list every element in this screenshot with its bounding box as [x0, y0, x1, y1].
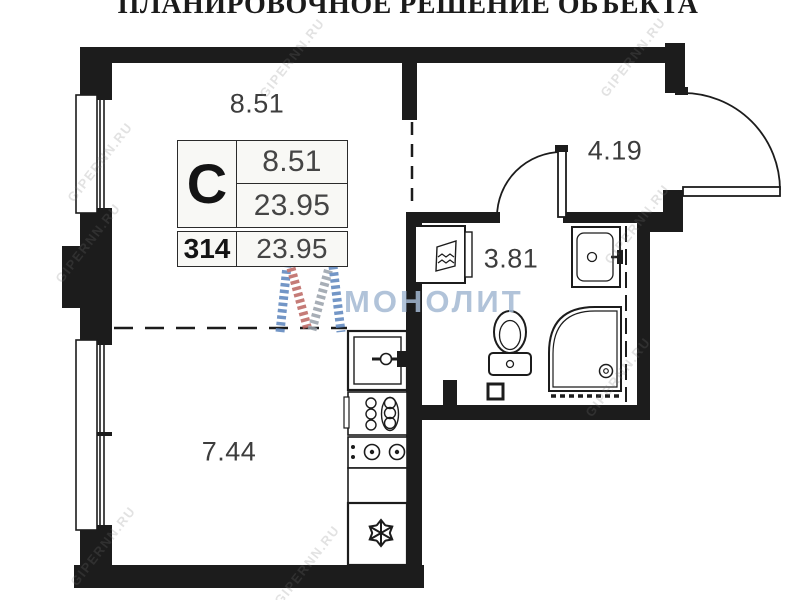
- kitchen-sink-icon: [348, 331, 407, 390]
- unit-card-bottom: 314 23.95: [177, 231, 348, 267]
- monolit-logo-icon: [280, 266, 341, 332]
- room-area-label-hallway: 4.19: [588, 136, 643, 167]
- fridge-snowflake-icon: [348, 503, 407, 565]
- pipe-shaft-icon: [488, 384, 503, 399]
- bathroom-door-swing-icon: [497, 145, 568, 217]
- dish-drainer-icon: [344, 392, 407, 435]
- unit-total-area: 23.95: [237, 184, 347, 227]
- unit-number: 314: [178, 232, 237, 266]
- room-area-label-kitchen-zone: 8.51: [230, 89, 285, 120]
- washing-machine-icon: [415, 226, 472, 283]
- hob-2-burner-icon: [348, 437, 407, 468]
- room-area-label-bathroom: 3.81: [484, 244, 539, 275]
- floor-plan-page: ПЛАНИРОВОЧНОЕ РЕШЕНИЕ ОБЪЕКТА 8.51 4.19 …: [0, 0, 800, 600]
- room-area-label-living-zone: 7.44: [202, 437, 257, 468]
- unit-zone-area: 8.51: [237, 141, 347, 184]
- unit-total-area-repeat: 23.95: [237, 232, 347, 266]
- entrance-door-swing-icon: [675, 87, 780, 196]
- unit-type-letter: С: [178, 141, 237, 227]
- unit-info-card: С 8.51 23.95 314 23.95: [177, 140, 348, 267]
- kitchen-counter: [348, 468, 407, 503]
- brand-watermark: МОНОЛИТ: [344, 284, 524, 320]
- window-2: [76, 340, 112, 530]
- toilet-icon: [489, 311, 531, 375]
- unit-card-top: С 8.51 23.95: [177, 140, 348, 228]
- page-title: ПЛАНИРОВОЧНОЕ РЕШЕНИЕ ОБЪЕКТА: [118, 0, 699, 19]
